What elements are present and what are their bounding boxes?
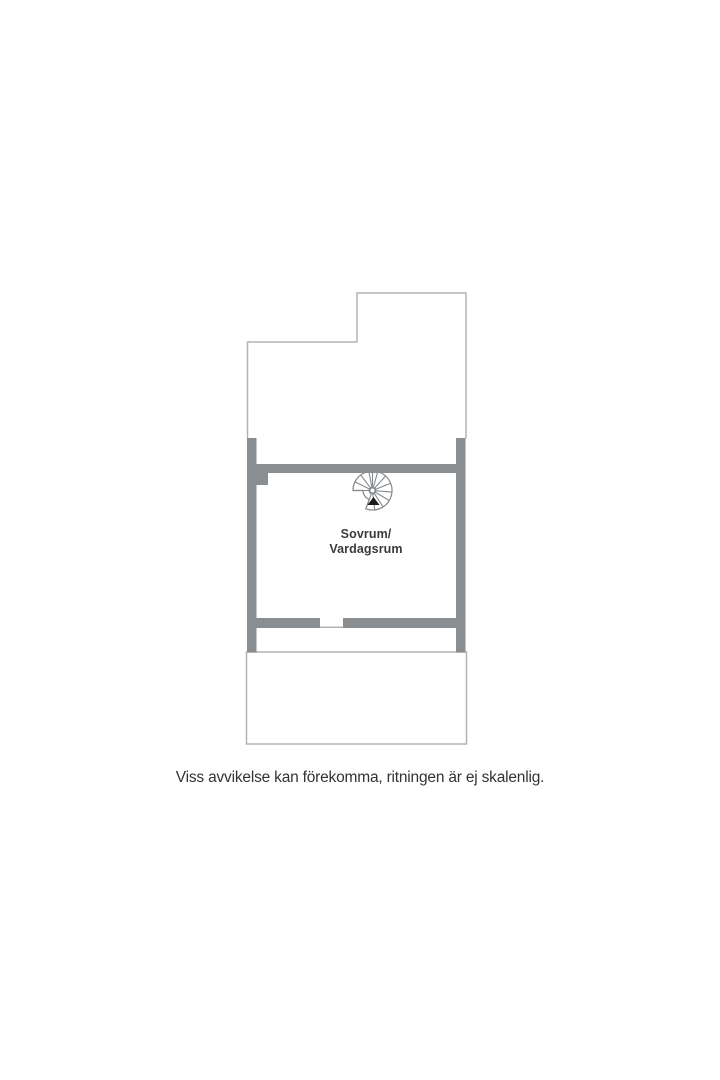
wall-step: [257, 473, 269, 485]
bottom-wall-left-segment: [247, 618, 320, 628]
lower-area-outline: [247, 652, 467, 744]
floor-plan-page: Sovrum/ Vardagsrum Viss avvikelse kan fö…: [0, 0, 720, 1080]
disclaimer-text: Viss avvikelse kan förekomma, ritningen …: [0, 769, 720, 787]
room-label-line2: Vardagsrum: [256, 542, 476, 557]
opening-threshold-line: [320, 627, 343, 629]
room-label-line1: Sovrum/: [256, 527, 476, 542]
bottom-wall-right-segment: [343, 618, 466, 628]
spiral-staircase-icon: [353, 471, 392, 510]
top-wall: [247, 464, 466, 473]
upper-level-outline: [248, 293, 467, 439]
staircase-center-pole: [370, 488, 376, 494]
room-label: Sovrum/ Vardagsrum: [256, 527, 476, 557]
